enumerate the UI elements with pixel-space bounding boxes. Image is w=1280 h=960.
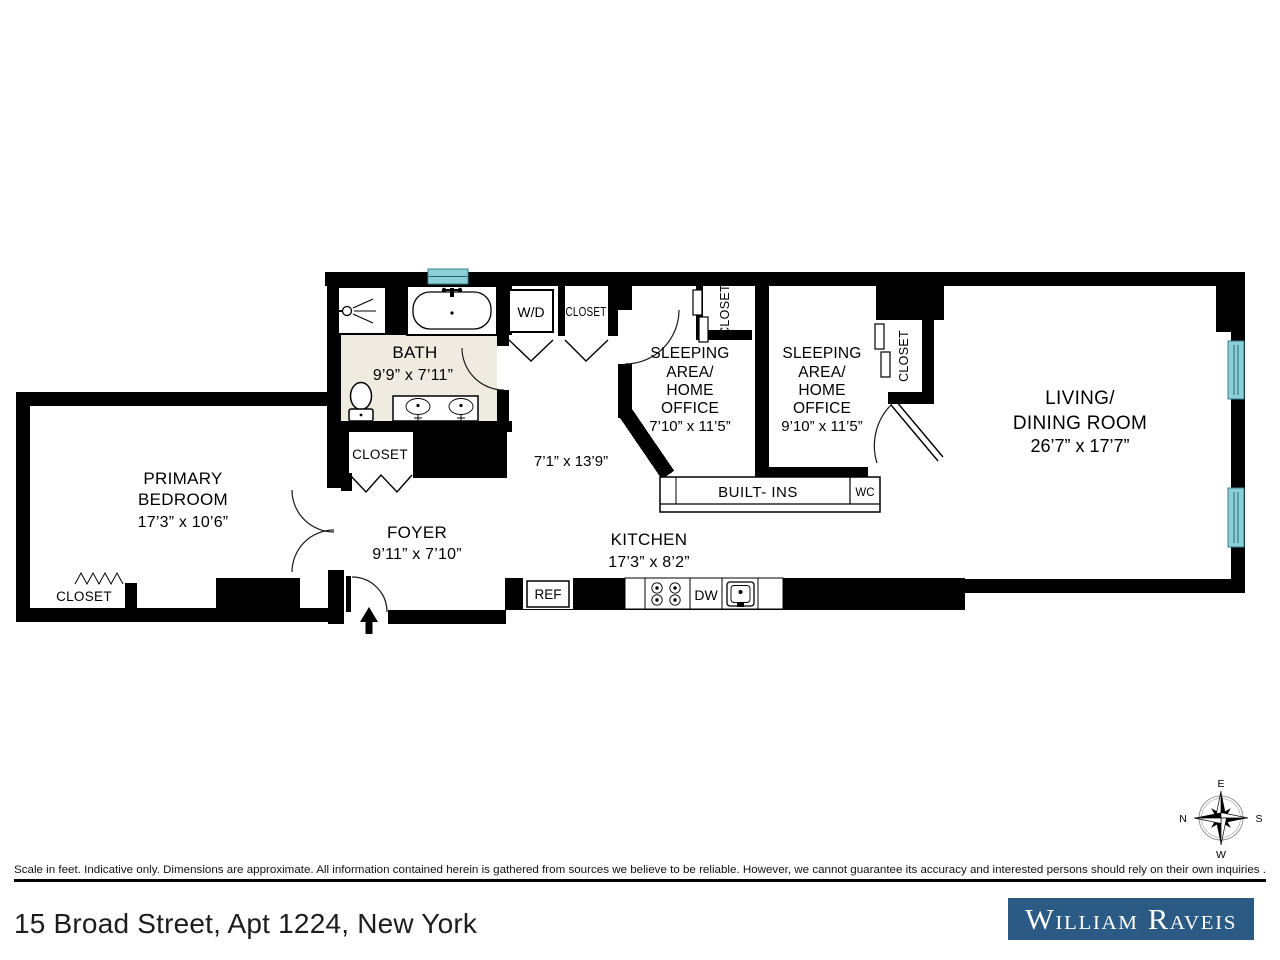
room-dims: 17’3” x 8’2”	[608, 554, 690, 571]
compass-rose-icon: E S W N	[1179, 778, 1262, 861]
room-foyer: FOYER 9’11” x 7’10”	[372, 523, 461, 563]
wc-label: WC	[855, 487, 874, 499]
room-kitchen: KITCHEN 17’3” x 8’2”	[608, 530, 690, 571]
room-label: PRIMARY	[143, 469, 222, 488]
closet-rod-icon	[75, 573, 123, 584]
room-primary-bedroom: PRIMARY BEDROOM 17’3” x 10’6”	[138, 469, 229, 531]
bedroom-closet-label: CLOSET	[56, 589, 112, 604]
room-label: AREA/	[798, 364, 846, 381]
sleeping2-closet-label: CLOSET	[897, 330, 911, 382]
address-text: 15 Broad Street, Apt 1224, New York	[14, 908, 478, 939]
footer-divider	[14, 879, 1266, 882]
room-label: SLEEPING	[650, 345, 729, 362]
bathtub-icon	[407, 286, 497, 335]
room-sleeping-area-1: SLEEPING AREA/ HOME OFFICE 7’10” x 11’5”	[649, 345, 730, 435]
kitchen-counter: DW	[625, 578, 783, 609]
washer-dryer-box: W/D	[509, 290, 553, 332]
fridge-box: REF	[523, 578, 573, 609]
room-label: LIVING/	[1045, 388, 1115, 409]
vanity-sinks-icon	[393, 396, 478, 421]
toilet-icon	[349, 383, 373, 422]
room-label: FOYER	[387, 523, 447, 542]
room-dims: 9’10” x 11’5”	[781, 418, 862, 435]
disclaimer-text: Scale in feet. Indicative only. Dimensio…	[14, 864, 1266, 876]
entry-arrow-icon	[360, 607, 378, 634]
compass-east-label: E	[1217, 778, 1224, 790]
compass-west-label: W	[1216, 849, 1226, 861]
foyer-closet-label: CLOSET	[352, 447, 408, 462]
room-label: AREA/	[666, 364, 714, 381]
compass-north-label: N	[1179, 813, 1187, 825]
room-label: HOME	[798, 382, 845, 399]
wd-door-icon	[509, 340, 553, 361]
bath-door-opening	[497, 346, 509, 390]
window-icon	[1228, 341, 1244, 399]
hall-dims: 7’1” x 13’9”	[534, 453, 608, 470]
brand-logo-text: William Raveis	[1025, 904, 1237, 936]
room-label: BEDROOM	[138, 490, 228, 509]
washer-dryer-label: W/D	[517, 304, 544, 320]
room-living-dining: LIVING/ DINING ROOM 26’7” x 17’7”	[1013, 388, 1147, 456]
sleeping1-closet-label: CLOSET	[718, 284, 732, 336]
room-label: DINING ROOM	[1013, 413, 1147, 434]
room-label: OFFICE	[661, 400, 719, 417]
floor-plan-image: BATH 9’9” x 7’11” W/D CLOSET CLOSET CLOS…	[0, 0, 1280, 960]
room-dims-bath: 9’9” x 7’11”	[373, 367, 453, 384]
room-label-bath: BATH	[392, 343, 437, 362]
room-label: SLEEPING	[782, 345, 861, 362]
foyer-closet-bifold-icon	[350, 475, 412, 492]
room-label: HOME	[666, 382, 713, 399]
sliding-closet-door-icon	[875, 324, 890, 377]
dishwasher-label: DW	[694, 587, 718, 603]
hall-closet-label: CLOSET	[566, 305, 607, 319]
room-dims: 17’3” x 10’6”	[138, 514, 229, 531]
room-sleeping-area-2: SLEEPING AREA/ HOME OFFICE 9’10” x 11’5”	[781, 345, 862, 435]
shower-icon	[338, 287, 386, 334]
built-ins-label: BUILT- INS	[718, 484, 798, 501]
room-label: OFFICE	[793, 400, 851, 417]
brand-logo: William Raveis	[1008, 898, 1254, 940]
room-dims: 9’11” x 7’10”	[372, 546, 461, 563]
room-dims: 26’7” x 17’7”	[1030, 436, 1129, 456]
window-icon	[1228, 488, 1244, 547]
compass-south-label: S	[1255, 813, 1262, 825]
room-dims: 7’10” x 11’5”	[649, 418, 730, 435]
room-label: KITCHEN	[611, 530, 688, 549]
fridge-label: REF	[535, 587, 562, 602]
hall-closet-door-icon	[565, 340, 608, 361]
built-ins: BUILT- INS WC	[660, 477, 880, 512]
